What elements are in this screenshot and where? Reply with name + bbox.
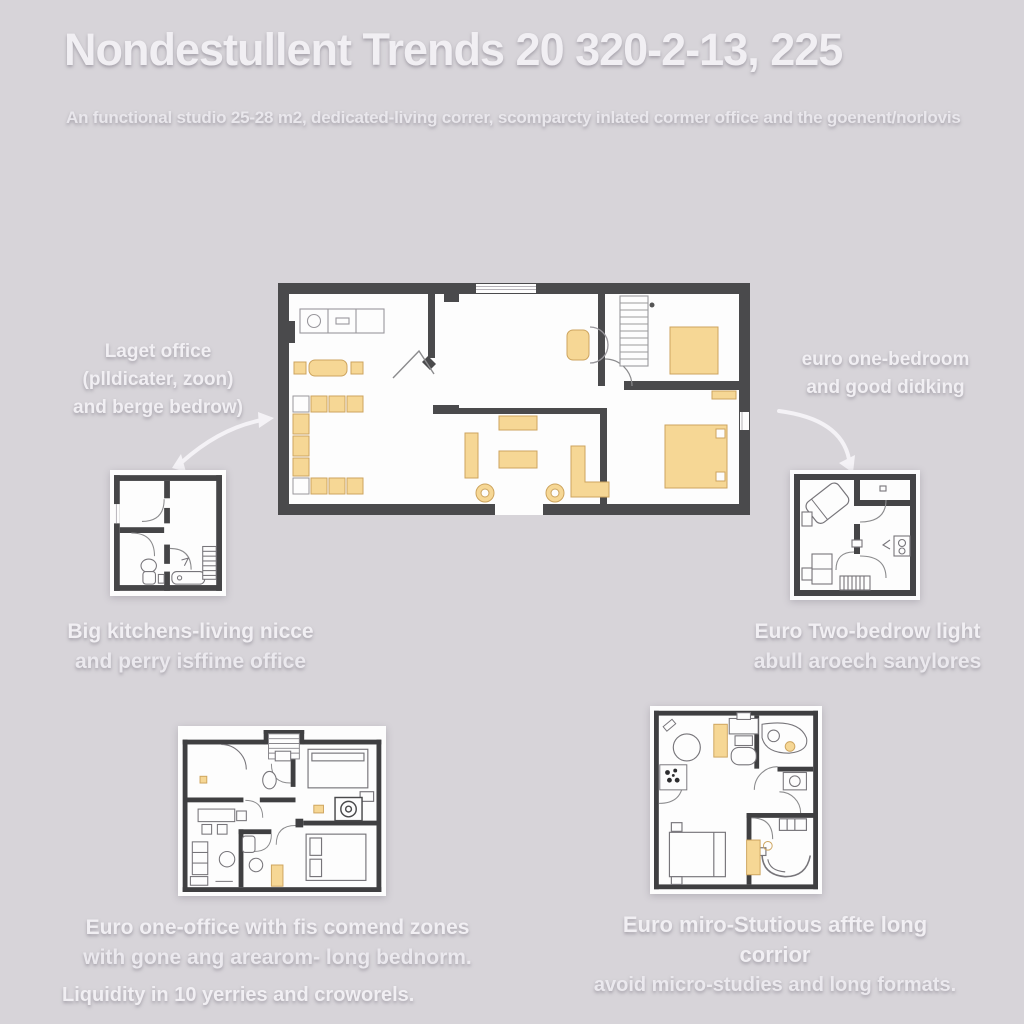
- caption-left-small-line1: Big kitchens-living nicce: [48, 617, 333, 647]
- caption-bottom-right-line2: avoid micro-studies and long formats.: [585, 970, 965, 1000]
- main-floor-plan: [278, 283, 750, 515]
- annotation-right-line1: euro one-bedroom: [788, 346, 983, 374]
- bed-icon: [669, 823, 725, 885]
- small-plan-right: [790, 470, 920, 600]
- caption-right-small-line1: Euro Two-bedrow light: [725, 617, 1010, 647]
- annotation-right: euro one-bedroom and good didking: [788, 346, 983, 402]
- bed-icon: [306, 834, 366, 880]
- plants-box-icon: [660, 765, 687, 790]
- round-table-icon: [673, 734, 700, 761]
- arrow-left: [162, 402, 280, 480]
- bed-icon: [670, 327, 718, 374]
- dining-table-icon: [294, 360, 363, 376]
- chair-icon: [731, 747, 756, 764]
- bottom-plan-left: [178, 726, 386, 896]
- shelf-icon: [779, 819, 806, 831]
- desk-icon: [192, 842, 207, 875]
- shelf-icon: [712, 391, 736, 399]
- bottom-plan-right: [650, 706, 822, 894]
- caption-bottom-left-line2: with gone ang arearom- long bednorm.: [70, 943, 485, 973]
- caption-bottom-right: Euro miro-Stutious affte long corrior av…: [585, 910, 965, 1000]
- caption-left-small-line2: and perry isffime office: [48, 647, 333, 677]
- annotation-left-line2: (plldicater, zoon): [48, 366, 268, 394]
- annotation-left-line1: Laget office: [48, 338, 268, 366]
- bathtub-icon: [172, 572, 205, 585]
- stool-icon: [785, 742, 795, 752]
- sink-icon: [242, 836, 255, 852]
- washer-icon: [783, 773, 806, 790]
- kitchen-counter-icon: [300, 309, 384, 333]
- toilet-icon: [141, 559, 156, 573]
- toilet-icon: [263, 771, 277, 788]
- footer-note: Liquidity in 10 yerries and croworels.: [62, 984, 414, 1007]
- caption-left-small: Big kitchens-living nicce and perry isff…: [48, 617, 333, 677]
- page-subtitle: An functional studio 25-28 m2, dedicated…: [66, 108, 961, 128]
- caption-right-small: Euro Two-bedrow light abull aroech sanyl…: [725, 617, 1010, 677]
- washer-icon: [335, 798, 362, 821]
- double-bed-icon: [665, 425, 727, 488]
- caption-bottom-left: Euro one-office with fis comend zones wi…: [70, 913, 485, 973]
- caption-bottom-right-line1: Euro miro-Stutious affte long corrior: [585, 910, 965, 970]
- small-plan-left: [110, 470, 226, 596]
- page-title: Nondestullent Trends 20 320-2-13, 225: [64, 24, 842, 76]
- arrow-right: [775, 405, 870, 477]
- caption-bottom-left-line1: Euro one-office with fis comend zones: [70, 913, 485, 943]
- annotation-right-line2: and good didking: [788, 374, 983, 402]
- caption-right-small-line2: abull aroech sanylores: [725, 647, 1010, 677]
